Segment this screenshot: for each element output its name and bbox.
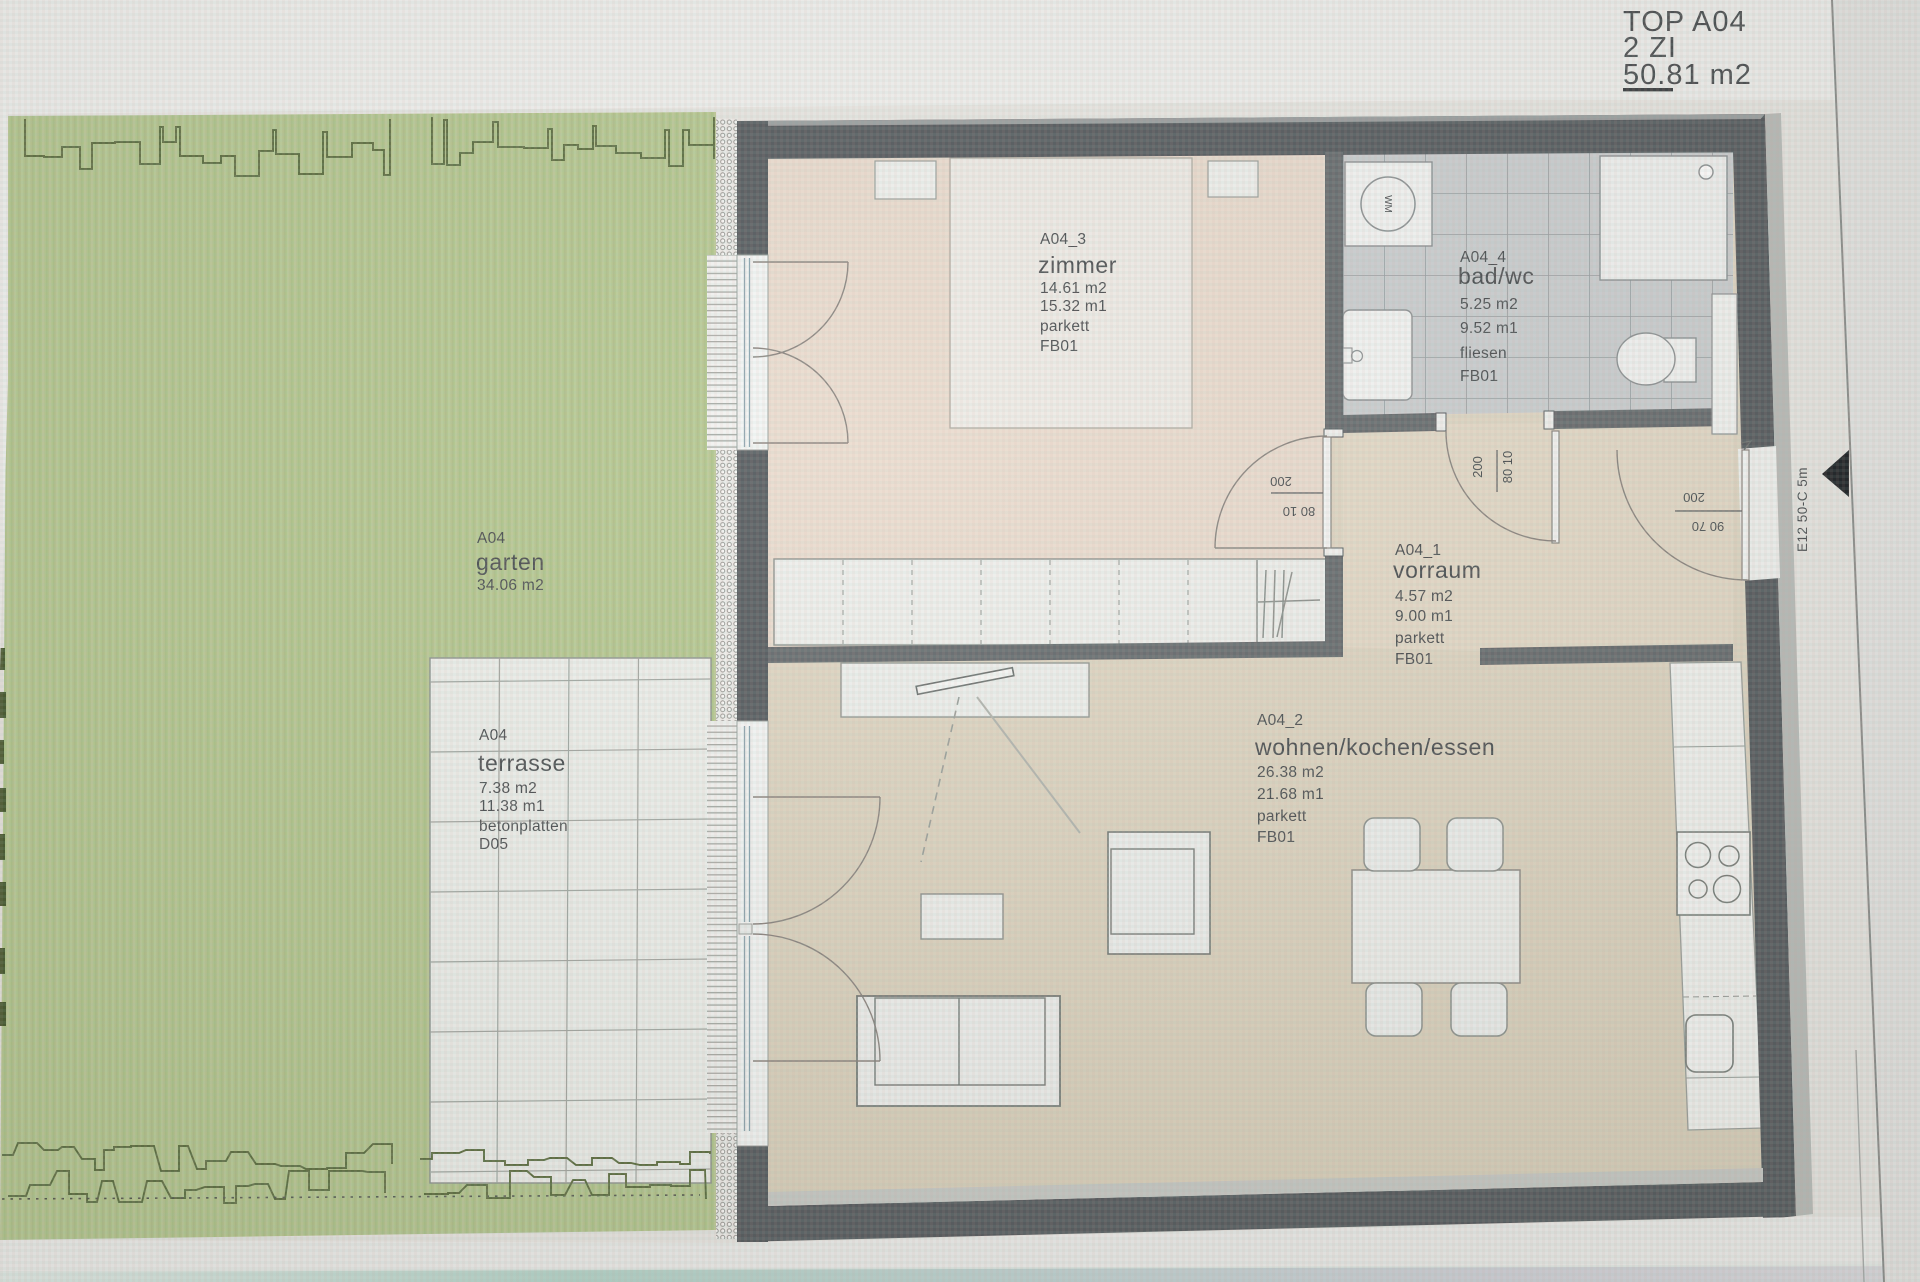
svg-text:garten: garten	[476, 549, 545, 575]
svg-text:200: 200	[1683, 490, 1705, 505]
svg-text:A04_2: A04_2	[1257, 712, 1303, 729]
svg-text:A04: A04	[477, 530, 506, 547]
svg-text:21.68 m1: 21.68 m1	[1257, 786, 1324, 803]
svg-text:fliesen: fliesen	[1460, 345, 1507, 362]
svg-text:34.06 m2: 34.06 m2	[477, 577, 544, 594]
svg-text:A04_3: A04_3	[1040, 231, 1086, 248]
svg-text:parkett: parkett	[1395, 630, 1445, 647]
svg-text:5.25 m2: 5.25 m2	[1460, 296, 1518, 313]
svg-text:4.57 m2: 4.57 m2	[1395, 588, 1453, 605]
svg-text:50.81 m2: 50.81 m2	[1623, 59, 1752, 91]
svg-text:FB01: FB01	[1257, 829, 1295, 846]
svg-text:parkett: parkett	[1257, 808, 1307, 825]
svg-text:D05: D05	[479, 836, 508, 853]
svg-text:parkett: parkett	[1040, 318, 1090, 335]
svg-text:9.52 m1: 9.52 m1	[1460, 320, 1518, 337]
svg-text:terrasse: terrasse	[478, 750, 566, 776]
svg-text:FB01: FB01	[1040, 338, 1078, 355]
svg-text:11.38 m1: 11.38 m1	[479, 798, 545, 815]
svg-text:wohnen/kochen/essen: wohnen/kochen/essen	[1254, 734, 1495, 760]
svg-text:90 70: 90 70	[1692, 519, 1725, 534]
svg-text:14.61 m2: 14.61 m2	[1040, 280, 1107, 297]
svg-text:vorraum: vorraum	[1393, 557, 1482, 583]
svg-text:80 10: 80 10	[1283, 504, 1316, 519]
svg-text:FB01: FB01	[1460, 368, 1498, 385]
svg-text:A04: A04	[479, 727, 508, 744]
svg-text:zimmer: zimmer	[1038, 252, 1117, 278]
svg-text:80 10: 80 10	[1500, 451, 1515, 484]
svg-text:15.32 m1: 15.32 m1	[1040, 298, 1107, 315]
svg-text:26.38 m2: 26.38 m2	[1257, 764, 1324, 781]
svg-text:E12 50-C 5m: E12 50-C 5m	[1795, 467, 1810, 552]
svg-text:200: 200	[1270, 474, 1292, 489]
svg-text:betonplatten: betonplatten	[479, 818, 568, 835]
svg-text:200: 200	[1470, 456, 1485, 478]
svg-text:bad/wc: bad/wc	[1458, 263, 1534, 289]
svg-text:FB01: FB01	[1395, 651, 1433, 668]
svg-text:WM: WM	[1382, 195, 1393, 213]
svg-text:9.00 m1: 9.00 m1	[1395, 608, 1453, 625]
svg-text:7.38 m2: 7.38 m2	[479, 780, 537, 797]
